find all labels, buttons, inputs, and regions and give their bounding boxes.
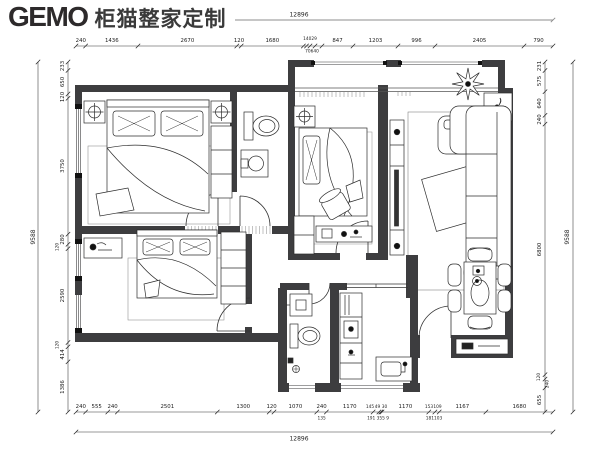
dim-label: 2590 <box>60 288 66 302</box>
bathroom-window-icon <box>289 383 315 392</box>
nightstand-icon <box>211 101 232 123</box>
dim-label: 6800 <box>537 242 543 256</box>
dim-label: 1170 <box>399 404 413 410</box>
dim-label: 1680 <box>265 38 279 44</box>
dim-label: 1070 <box>289 404 303 410</box>
wardrobe-icon <box>221 232 246 304</box>
entry-door-arc-icon <box>419 306 451 338</box>
dim-label: 555 <box>92 404 102 410</box>
dining-chair-icon <box>498 264 511 286</box>
dim-label: 640 <box>537 98 543 109</box>
dining-chair-icon <box>468 248 492 261</box>
toilet-icon <box>290 324 320 348</box>
dim-label: 70640 <box>305 49 319 55</box>
dim-label: 240 <box>537 114 543 125</box>
dim-label: 120 <box>55 341 61 349</box>
dim-label: 1167 <box>455 404 469 410</box>
dim-label: 240 <box>545 380 551 388</box>
dim-total: 9588 <box>564 229 571 244</box>
dim-label: 996 <box>411 38 422 44</box>
dim-label: 655 <box>537 395 543 405</box>
dim-label: 191 355 9 <box>367 416 389 422</box>
toilet-icon <box>244 112 279 140</box>
dining-chair-icon <box>468 316 492 329</box>
dining-chair-icon <box>448 290 461 312</box>
brand-logo: GEMO <box>8 3 88 31</box>
desk-icon <box>316 226 372 242</box>
dining-table-icon <box>464 262 496 314</box>
window-icon <box>75 104 82 178</box>
brand-name: 柜猫整家定制 <box>95 9 227 30</box>
brand-header: GEMO 柜猫整家定制 <box>8 3 235 31</box>
dining-chair-icon <box>448 264 461 286</box>
dim-label: 1680 <box>513 404 527 410</box>
sink-icon <box>241 150 268 177</box>
sink-icon <box>286 294 312 316</box>
dim-label: 120 <box>60 91 66 102</box>
wardrobe-icon <box>294 216 314 254</box>
window-icon <box>75 295 82 333</box>
dim-label: 153 <box>425 404 433 410</box>
dim-label: 3750 <box>60 159 66 173</box>
kitchen-sliding-door-icon <box>345 284 408 288</box>
dim-total: 12896 <box>289 12 308 19</box>
dim-label: 2405 <box>473 38 487 44</box>
dim-label: 575 <box>537 76 543 86</box>
dim-label: 414 <box>60 349 66 360</box>
dim-label: 233 <box>60 61 66 71</box>
dim-label: 650 <box>60 76 66 87</box>
dim-label: 240 <box>107 404 118 410</box>
wardrobe-icon <box>211 126 232 198</box>
kitchen-window-icon <box>341 383 403 392</box>
dim-label: 1170 <box>343 404 357 410</box>
plant-icon <box>452 68 484 100</box>
nightstand-icon <box>84 101 105 123</box>
desk-icon <box>84 238 122 258</box>
dim-label: 135 <box>317 416 325 422</box>
dim-label: 280 <box>60 234 66 245</box>
dim-label: 30 <box>382 404 388 410</box>
dim-total: 9588 <box>30 229 37 244</box>
master-bed-icon <box>96 100 209 216</box>
dim-label: 120 <box>266 404 277 410</box>
window-hatch <box>300 92 410 97</box>
dim-total: 12896 <box>289 436 308 443</box>
dim-label: 2670 <box>181 38 195 44</box>
balcony-window-icon <box>311 60 387 67</box>
dim-label: 1203 <box>369 38 383 44</box>
dim-label: 1386 <box>60 380 66 394</box>
dim-label: 181103 <box>426 416 443 422</box>
kitchen-sink-icon <box>376 357 412 381</box>
floor-drain-icon <box>288 358 300 373</box>
floorplan-drawing: 12896 240 1436 2670 120 1680 14029 70640… <box>0 0 600 465</box>
dim-label: 240 <box>316 404 327 410</box>
dim-label: 145 <box>366 404 374 410</box>
dim-label: 790 <box>533 38 544 44</box>
balcony-window-icon <box>398 60 482 67</box>
dim-label: 2501 <box>160 404 174 410</box>
dim-label: 120 <box>234 38 245 44</box>
dim-label: 231 <box>537 61 543 71</box>
window-icon <box>75 239 82 281</box>
shoe-cabinet-icon <box>456 339 508 354</box>
kitchen-counter-icon <box>340 293 362 379</box>
dim-label: 14029 <box>303 36 317 42</box>
dim-label: 847 <box>332 38 342 44</box>
dim-label: 1436 <box>105 38 119 44</box>
floorplan-page: GEMO 柜猫整家定制 <box>0 0 600 465</box>
dim-label: 240 <box>76 404 87 410</box>
dining-chair-icon <box>498 290 511 312</box>
dim-label: 120 <box>55 243 61 251</box>
dim-label: 109 <box>433 404 441 410</box>
tv-cabinet-icon <box>390 120 404 255</box>
door-arc-icon <box>240 196 270 226</box>
dim-label: 49 <box>375 404 381 410</box>
bed-icon <box>137 230 217 298</box>
nightstand-icon <box>294 106 315 127</box>
dim-label: 1300 <box>236 404 250 410</box>
dim-label: 120 <box>536 373 542 381</box>
dim-label: 240 <box>76 38 87 44</box>
